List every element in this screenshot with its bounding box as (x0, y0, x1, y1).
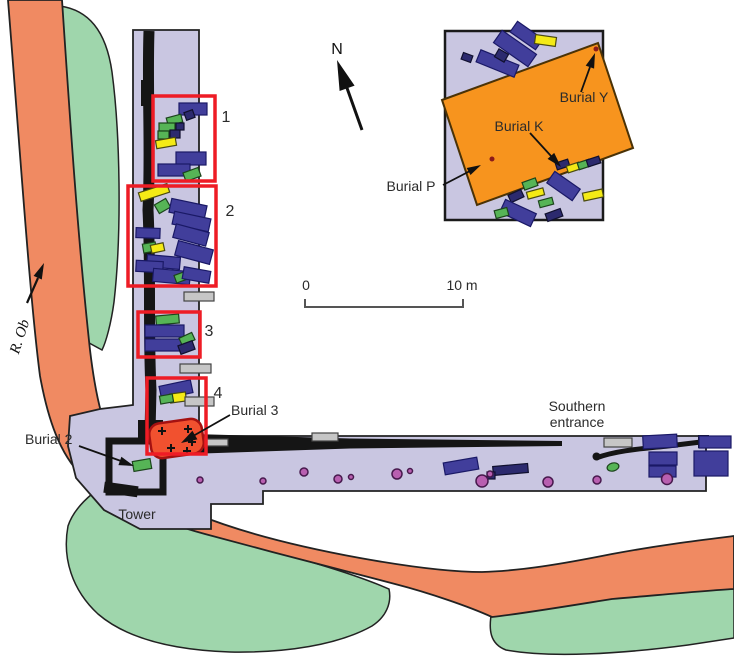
tower-label: Tower (118, 506, 156, 522)
wall-knob (593, 453, 601, 461)
grave-marker (156, 314, 180, 325)
grave-marker (604, 438, 632, 447)
burial-y-label: Burial Y (560, 89, 609, 105)
pit-dot (543, 477, 553, 487)
grave-marker (176, 123, 184, 130)
grave-marker (699, 436, 731, 448)
grave-marker (145, 339, 184, 351)
wall-bump (141, 80, 147, 106)
burial-location-dot (594, 47, 599, 52)
grave-marker (694, 451, 728, 476)
pit-dot (392, 469, 402, 479)
pit-dot (300, 468, 308, 476)
excavation-area-number: 2 (226, 203, 235, 220)
grave-marker (643, 434, 678, 449)
grave-marker (185, 397, 214, 406)
pit-dot (260, 478, 266, 484)
grave-marker (145, 325, 184, 337)
burial-k-label: Burial K (494, 118, 544, 134)
river-label: R. Ob (7, 317, 33, 357)
grave-marker (312, 433, 338, 441)
scale-ten-label: 10 m (446, 277, 477, 293)
grave-marker (136, 228, 160, 239)
grave-marker (649, 452, 677, 465)
burial2-label: Burial 2 (25, 431, 73, 447)
pit-dot (662, 474, 673, 485)
pit-dot (334, 475, 342, 483)
excavation-area-number: 1 (222, 109, 231, 126)
pit-dot (408, 469, 413, 474)
burial-p-label: Burial P (386, 178, 435, 194)
site-plan-svg: 1234 Burial 2 Burial 3 Tower Southern en… (0, 0, 734, 658)
grave-marker (180, 364, 211, 373)
grave-marker (176, 152, 206, 165)
scale-bar (305, 299, 463, 307)
excavation-area-number: 3 (205, 323, 214, 340)
pit-dot (197, 477, 203, 483)
north-label: N (331, 41, 343, 58)
burial-location-dot (490, 157, 495, 162)
burial3-label: Burial 3 (231, 402, 279, 418)
site-plan-figure: 1234 Burial 2 Burial 3 Tower Southern en… (0, 0, 734, 658)
north-arrowhead (337, 60, 355, 91)
pit-dot (476, 475, 488, 487)
pit-dot (349, 475, 354, 480)
vegetation-band-lower-left (66, 494, 389, 652)
excavation-area-number: 4 (214, 385, 223, 402)
grave-marker (184, 292, 214, 301)
southern-entrance-label-line2: entrance (550, 414, 605, 430)
southern-entrance-label-line1: Southern (549, 398, 606, 414)
terrain-layer (8, 0, 734, 654)
inset-map: Burial Y Burial K Burial P (386, 21, 633, 226)
grave-marker (159, 394, 173, 404)
north-arrow-line (347, 88, 362, 130)
scale-zero-label: 0 (302, 277, 310, 293)
grave-marker (158, 131, 169, 139)
pit-dot (593, 476, 601, 484)
grave-markers-layer (132, 103, 731, 479)
pit-dot (487, 471, 493, 477)
